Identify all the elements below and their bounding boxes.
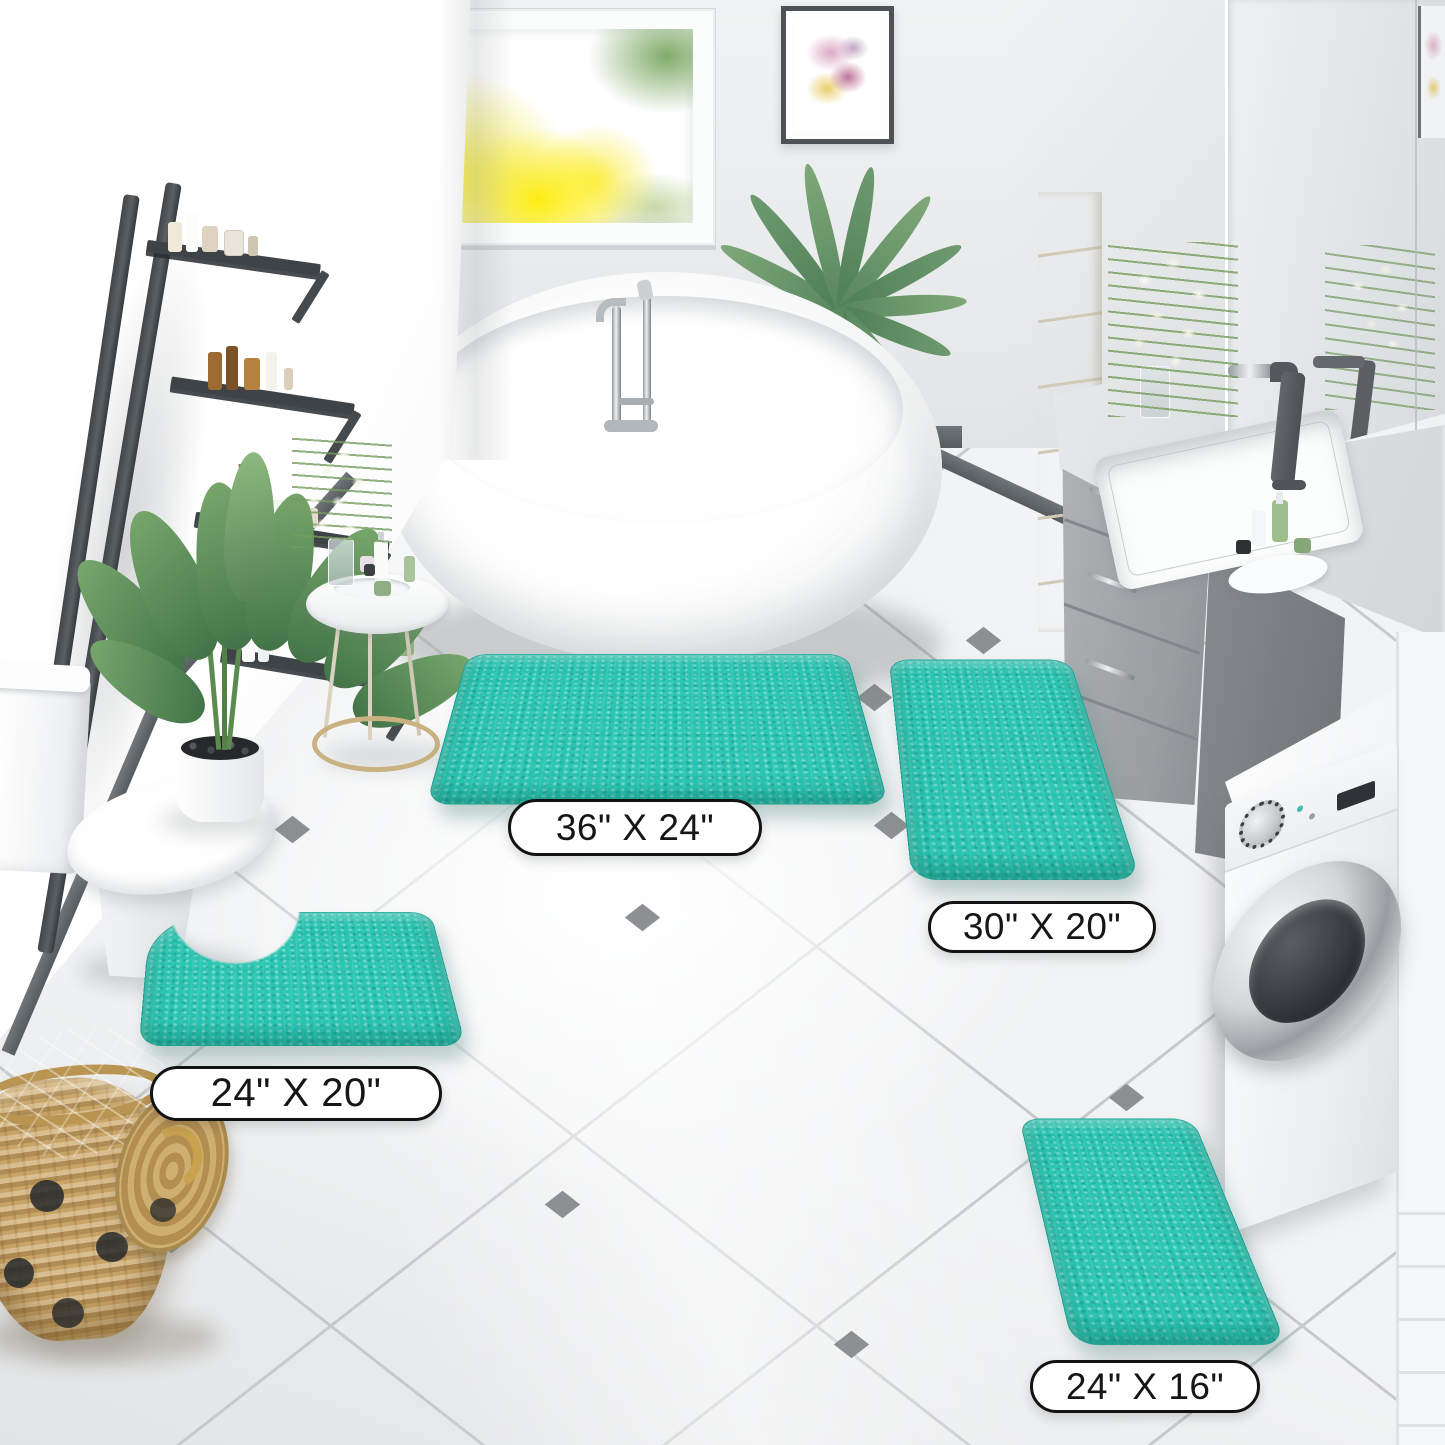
pump-bottle: [266, 352, 277, 390]
washer-button: [1309, 812, 1315, 820]
size-label-24x20: 24" X 20": [150, 1066, 442, 1121]
side-table-ring-base: [312, 716, 440, 772]
toiletry-bottle: [284, 368, 293, 390]
pump-bottle: [404, 556, 415, 582]
toilet-tank-lid: [0, 661, 91, 692]
mirror-art-reflection: [1418, 6, 1445, 138]
mirror-flowers-reflection: [1325, 245, 1435, 410]
tub-faucet-crossbar: [618, 398, 654, 405]
tub-faucet-base: [604, 420, 658, 432]
indicator-light: [1297, 805, 1303, 813]
cosmetic-jar: [374, 578, 391, 596]
tub-faucet-pipe: [643, 292, 651, 430]
amber-bottle: [244, 358, 260, 390]
gladiolus-flowers: [1108, 242, 1238, 417]
mirror-faucet-reflection: [1313, 356, 1365, 368]
wall-panel-grooves: [1396, 1162, 1445, 1445]
lotion-bottle: [1252, 510, 1266, 546]
washer-display: [1337, 780, 1375, 811]
bath-mat-30x20: [899, 606, 1099, 906]
basket-dot: [4, 1258, 34, 1288]
amber-bottle: [208, 352, 222, 390]
sink-faucet-base: [1272, 480, 1306, 490]
wall-panel: [1396, 632, 1445, 1445]
gladiolus-flowers: [292, 438, 392, 548]
toiletry-jar: [224, 230, 244, 256]
basket-dot: [30, 1180, 64, 1212]
size-label-text: 24" X 16": [1066, 1366, 1224, 1408]
abstract-watercolor: [794, 19, 881, 131]
size-label-24x16: 24" X 16": [1030, 1360, 1260, 1413]
size-label-text: 30" X 20": [963, 906, 1121, 948]
toiletry-bottle: [248, 236, 258, 256]
wall-corner-shade: [438, 0, 514, 460]
tub-faucet-pipe: [612, 306, 621, 424]
washer-door-glass: [1249, 882, 1365, 1040]
size-label-text: 36" X 24": [556, 807, 714, 849]
toiletry-jar: [202, 226, 218, 252]
cosmetic-jar: [364, 564, 375, 576]
washing-machine: [1225, 742, 1397, 1235]
amber-bottle: [226, 346, 238, 390]
chenille-mat-surface: [426, 654, 889, 805]
cosmetic-jar: [1294, 538, 1311, 553]
washer-door: [1213, 833, 1401, 1089]
lotion-bottle: [1272, 500, 1288, 542]
bath-mat-contour-24x20: [145, 878, 445, 1068]
washer-dial: [1239, 793, 1285, 856]
pump-top: [1276, 492, 1283, 504]
cosmetic-jar: [1236, 540, 1251, 554]
bath-mat-24x16: [1043, 1074, 1233, 1364]
basket-dot: [96, 1232, 128, 1262]
basket-dot: [52, 1298, 84, 1328]
toiletry-bottle: [186, 214, 198, 252]
toiletry-bottle: [168, 222, 182, 252]
bathroom-scene: 36" X 24" 30" X 20" 24" X 20" 24" X 16": [0, 0, 1445, 1445]
size-label-text: 24" X 20": [211, 1071, 382, 1116]
size-label-30x20: 30" X 20": [928, 901, 1156, 953]
wall-art-frame: [781, 6, 894, 144]
basket-lid-dot: [150, 1198, 176, 1222]
chenille-mat-surface: [139, 912, 466, 1046]
size-label-36x24: 36" X 24": [508, 799, 762, 856]
